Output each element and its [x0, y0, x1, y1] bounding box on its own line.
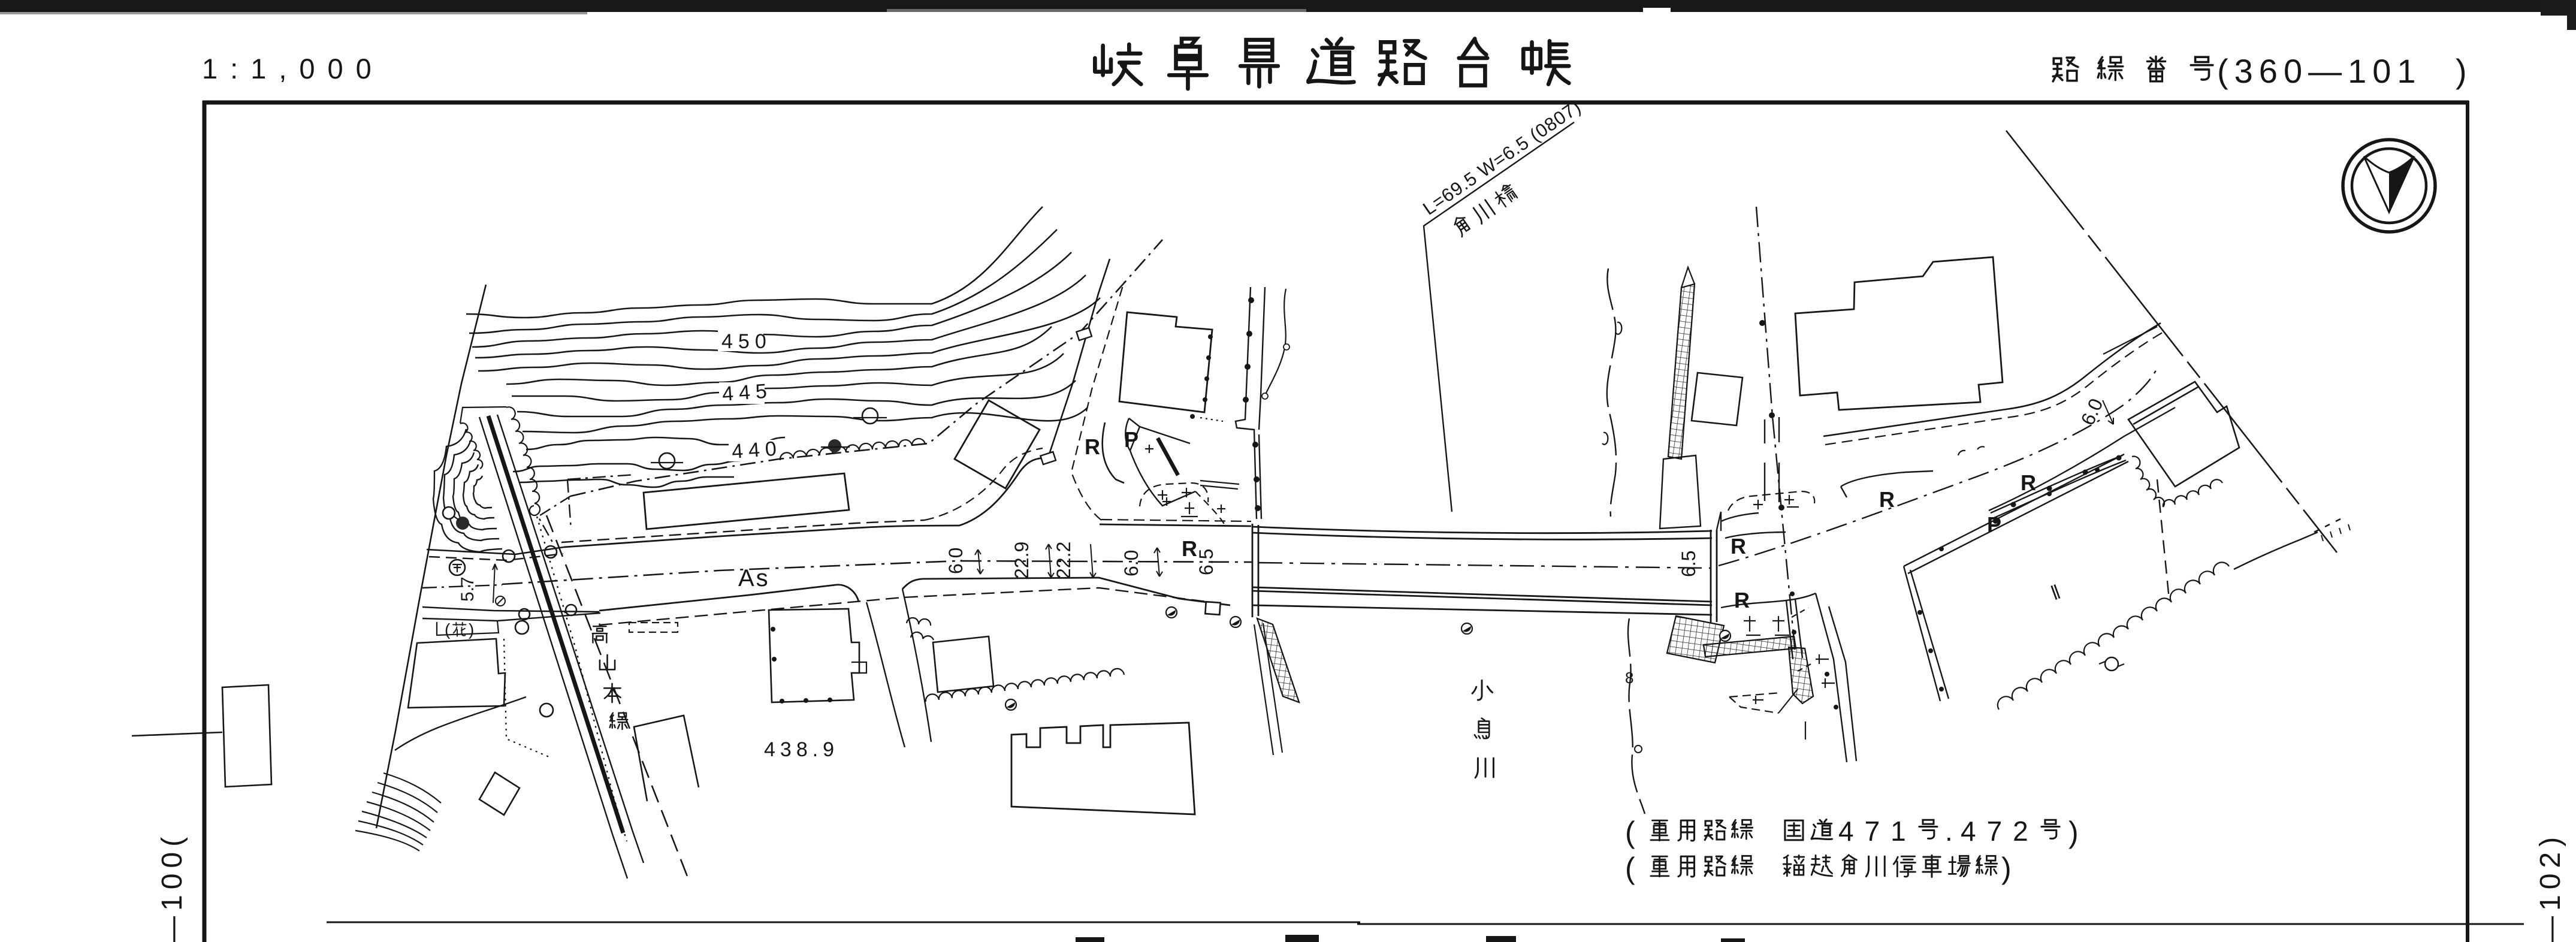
svg-text:R: R — [1085, 434, 1100, 459]
svg-text:—102): —102) — [2535, 832, 2566, 942]
svg-text:): ) — [2068, 816, 2079, 849]
svg-text:6.0: 6.0 — [945, 548, 967, 574]
svg-text:22.9: 22.9 — [1011, 542, 1032, 579]
svg-text:R: R — [1879, 487, 1895, 512]
svg-text:6.5: 6.5 — [1678, 551, 1699, 577]
svg-text:): ) — [2001, 852, 2012, 885]
svg-text:(: ( — [1625, 816, 1635, 849]
svg-text:6.5: 6.5 — [1195, 549, 1217, 575]
svg-text:438.9: 438.9 — [764, 738, 839, 761]
svg-text:R: R — [1734, 588, 1750, 612]
svg-text:471: 471 — [1838, 816, 1917, 847]
svg-text:8: 8 — [1625, 669, 1633, 687]
svg-text:R: R — [1731, 534, 1746, 558]
svg-text:5.7: 5.7 — [458, 576, 478, 602]
svg-text:445: 445 — [721, 379, 773, 406]
svg-text:6.0: 6.0 — [1121, 550, 1142, 576]
svg-text:P: P — [1124, 427, 1138, 452]
svg-text:): ) — [2456, 52, 2467, 90]
svg-text:472: 472 — [1961, 816, 2039, 847]
svg-text:—100(: —100( — [156, 832, 188, 942]
svg-text:22.2: 22.2 — [1053, 542, 1074, 579]
svg-text:(: ( — [445, 620, 451, 639]
svg-text:R: R — [1182, 536, 1197, 561]
svg-text:.: . — [1945, 816, 1953, 847]
svg-text:As: As — [738, 565, 770, 591]
svg-text:): ) — [469, 620, 474, 639]
svg-text:(360—101: (360—101 — [2217, 52, 2422, 90]
svg-text:6.0: 6.0 — [2077, 395, 2107, 428]
svg-text:R: R — [2021, 470, 2036, 495]
svg-text:P: P — [1987, 512, 2001, 537]
svg-text:450: 450 — [721, 330, 772, 353]
svg-text:1:1,000: 1:1,000 — [202, 53, 384, 84]
svg-text:(: ( — [1625, 852, 1635, 885]
svg-text:‖: ‖ — [2048, 581, 2064, 605]
